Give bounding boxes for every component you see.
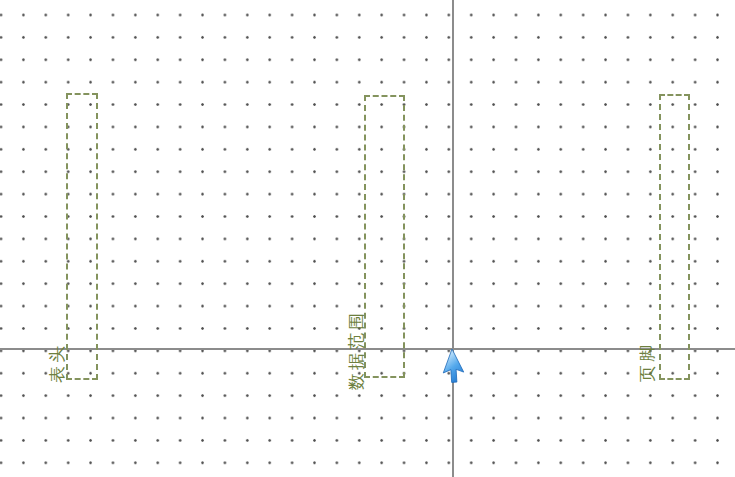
band-footer-label: 页脚 (637, 342, 657, 382)
band-header[interactable] (66, 93, 98, 380)
band-footer[interactable] (659, 94, 690, 380)
band-header-label: 表头 (47, 343, 67, 383)
vertical-guide-line (452, 0, 454, 477)
band-data-range-label: 数据范围 (346, 310, 366, 390)
design-canvas[interactable]: 表头 数据范围 页脚 (0, 0, 735, 477)
mouse-cursor-icon (440, 348, 472, 384)
band-data-range[interactable] (364, 95, 405, 378)
